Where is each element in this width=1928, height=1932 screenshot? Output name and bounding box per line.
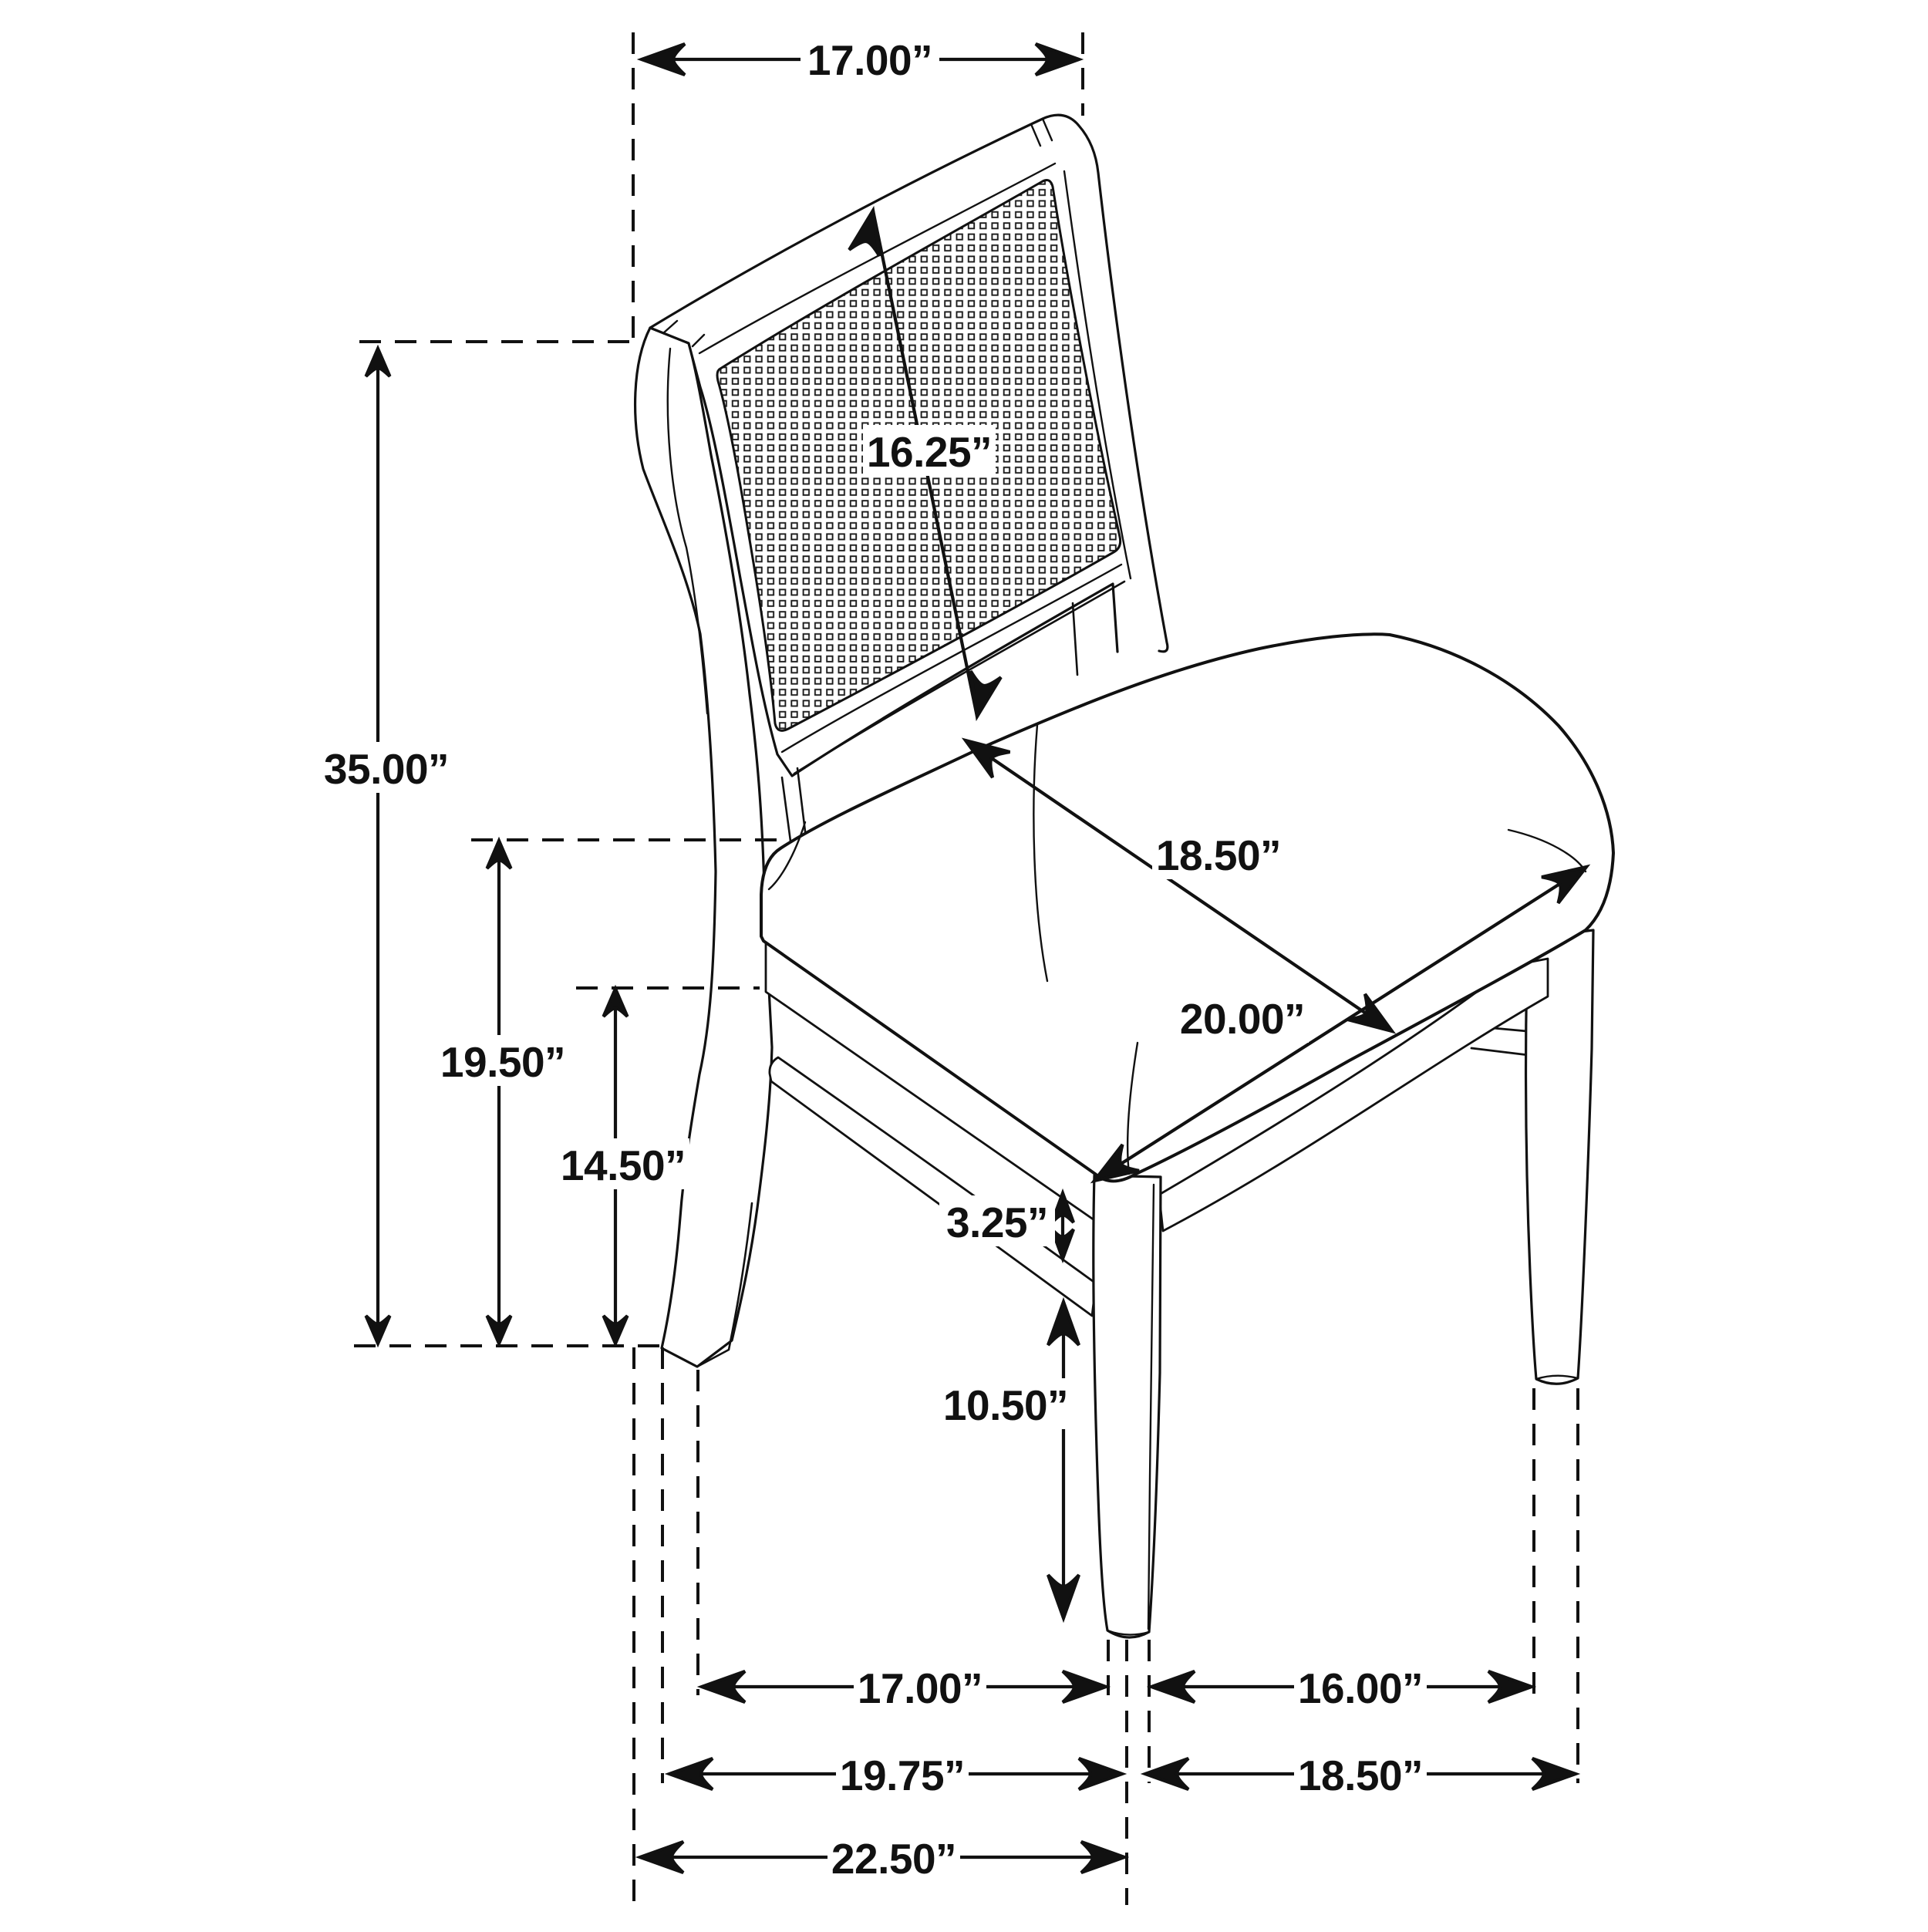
svg-text:17.00”: 17.00” <box>858 1664 983 1712</box>
svg-text:16.25”: 16.25” <box>867 428 992 476</box>
svg-text:19.50”: 19.50” <box>440 1038 565 1086</box>
svg-text:22.50”: 22.50” <box>831 1835 956 1883</box>
svg-text:35.00”: 35.00” <box>324 745 449 793</box>
svg-text:10.50”: 10.50” <box>943 1381 1068 1429</box>
svg-text:14.50”: 14.50” <box>561 1141 686 1189</box>
svg-text:18.50”: 18.50” <box>1156 831 1281 879</box>
svg-text:3.25”: 3.25” <box>946 1199 1048 1246</box>
svg-text:19.75”: 19.75” <box>840 1752 965 1799</box>
svg-text:17.00”: 17.00” <box>807 36 932 84</box>
svg-text:18.50”: 18.50” <box>1298 1752 1423 1799</box>
svg-text:20.00”: 20.00” <box>1180 995 1305 1043</box>
svg-text:16.00”: 16.00” <box>1298 1664 1423 1712</box>
